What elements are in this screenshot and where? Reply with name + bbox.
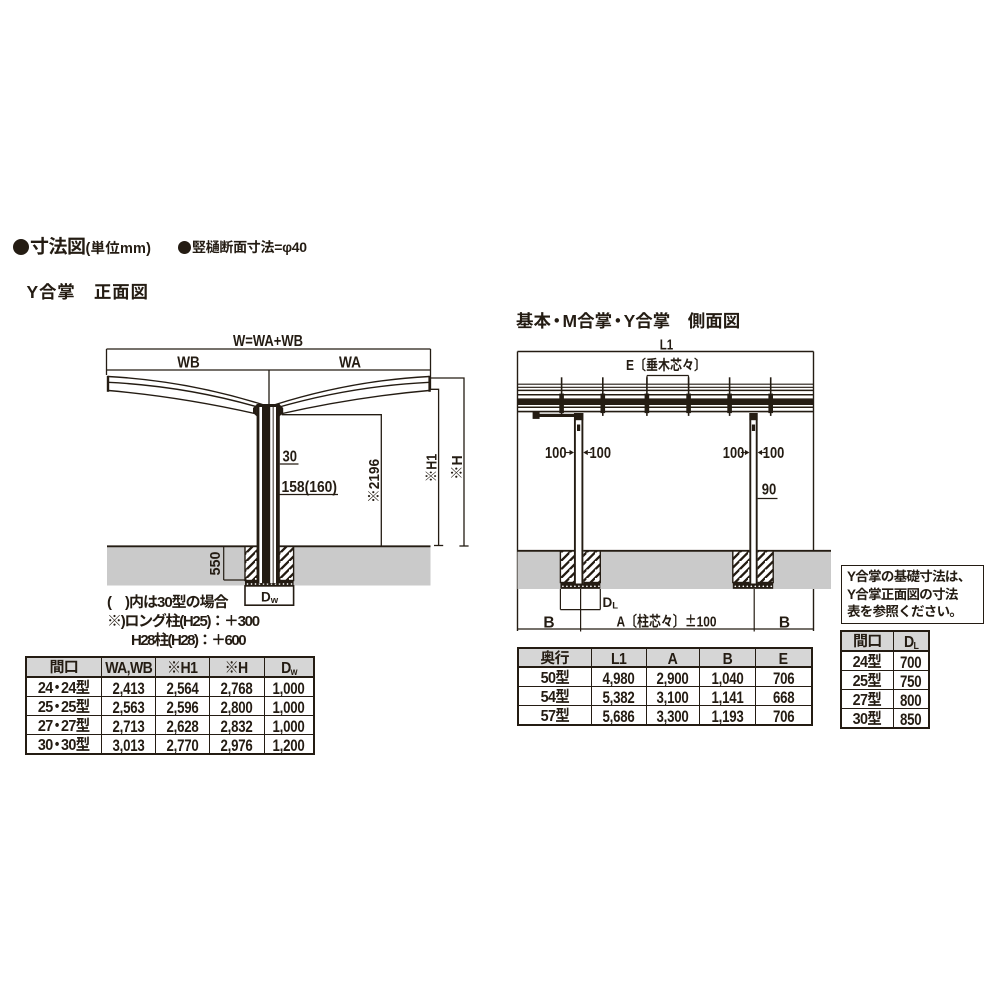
svg-text:E〔垂木芯々〕: E〔垂木芯々〕 xyxy=(626,354,706,375)
svg-text:100: 100 xyxy=(723,441,745,463)
svg-text:100: 100 xyxy=(763,441,785,463)
svg-text:90: 90 xyxy=(762,478,777,500)
svg-text:B: B xyxy=(543,611,554,633)
svg-text:30: 30 xyxy=(283,445,298,467)
svg-text:B: B xyxy=(779,611,790,633)
svg-text:100: 100 xyxy=(590,441,612,463)
svg-text:WB: WB xyxy=(177,351,200,373)
svg-text:A〔柱芯々〕±100: A〔柱芯々〕±100 xyxy=(617,611,717,632)
svg-text:※H1: ※H1 xyxy=(421,454,442,483)
svg-text:100: 100 xyxy=(545,441,567,463)
svg-text:※2196: ※2196 xyxy=(363,459,384,503)
svg-text:※H: ※H xyxy=(446,455,467,480)
svg-text:DL: DL xyxy=(603,591,619,612)
svg-text:W=WA+WB: W=WA+WB xyxy=(233,329,303,351)
svg-text:L1: L1 xyxy=(660,334,674,355)
svg-text:550: 550 xyxy=(204,552,225,576)
svg-text:158(160): 158(160) xyxy=(282,475,338,497)
svg-text:WA: WA xyxy=(339,351,361,373)
